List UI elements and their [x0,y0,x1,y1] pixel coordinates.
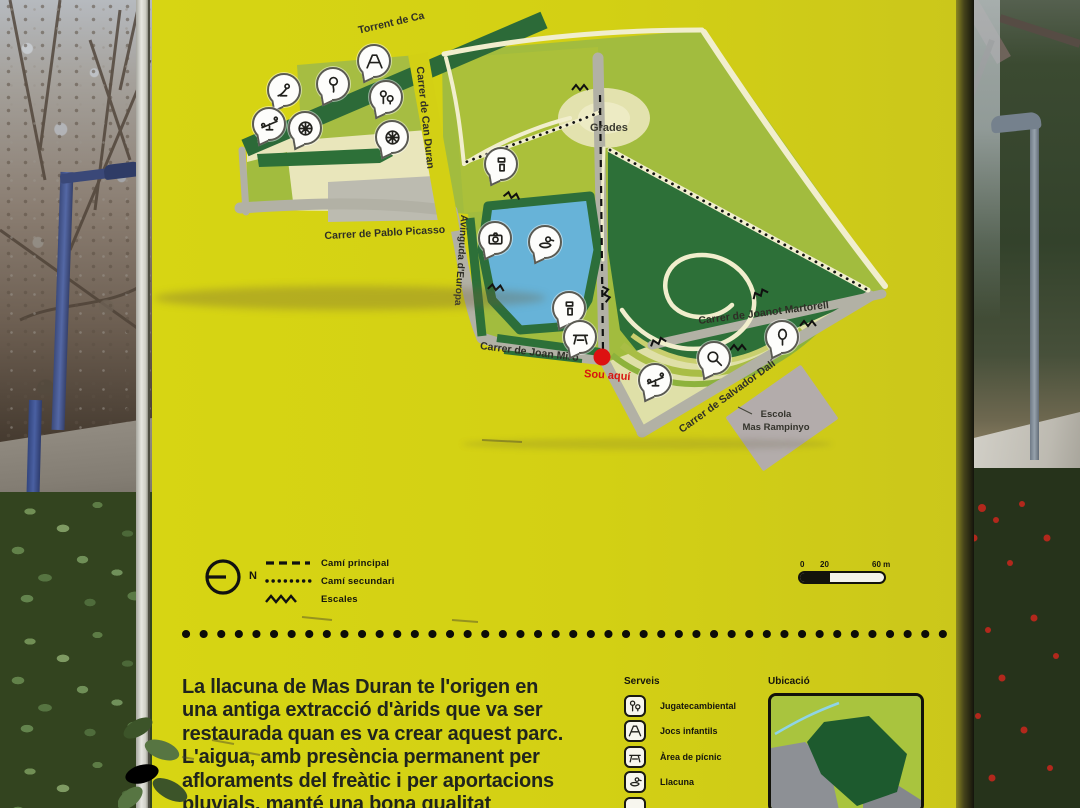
park-info-sign: Torrent de Ca Carrer de Can Duran Carrer… [136,0,974,808]
photo-of-park-map-sign: Torrent de Ca Carrer de Can Duran Carrer… [0,0,1080,808]
sign-face: Torrent de Ca Carrer de Can Duran Carrer… [152,0,956,808]
scuff-marks [152,0,956,808]
sign-shaded-edge [956,0,974,808]
background-bare-trees-left [0,0,152,808]
foreground-leaves [118,698,210,808]
gray-lamp-post [1030,126,1039,460]
sign-frame-edge [136,0,150,808]
